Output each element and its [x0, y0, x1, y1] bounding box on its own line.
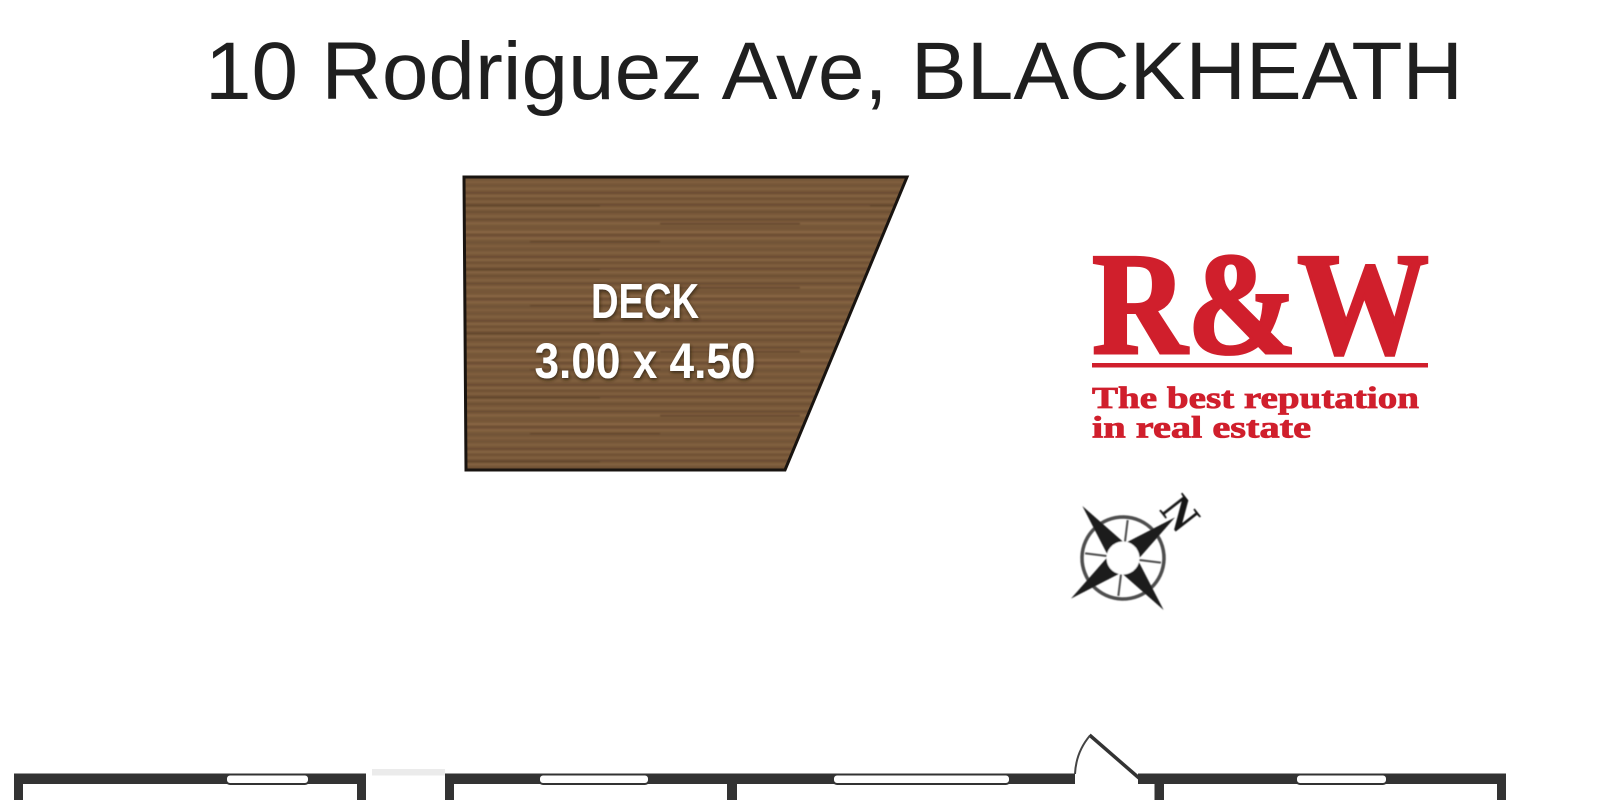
svg-text:3.00 x 4.50: 3.00 x 4.50 [535, 333, 756, 389]
svg-text:R&W: R&W [1092, 223, 1429, 385]
svg-text:DECK: DECK [591, 275, 699, 329]
svg-text:10 Rodriguez Ave, BLACKHEATH: 10 Rodriguez Ave, BLACKHEATH [205, 26, 1463, 117]
svg-text:in real estate: in real estate [1092, 410, 1311, 445]
